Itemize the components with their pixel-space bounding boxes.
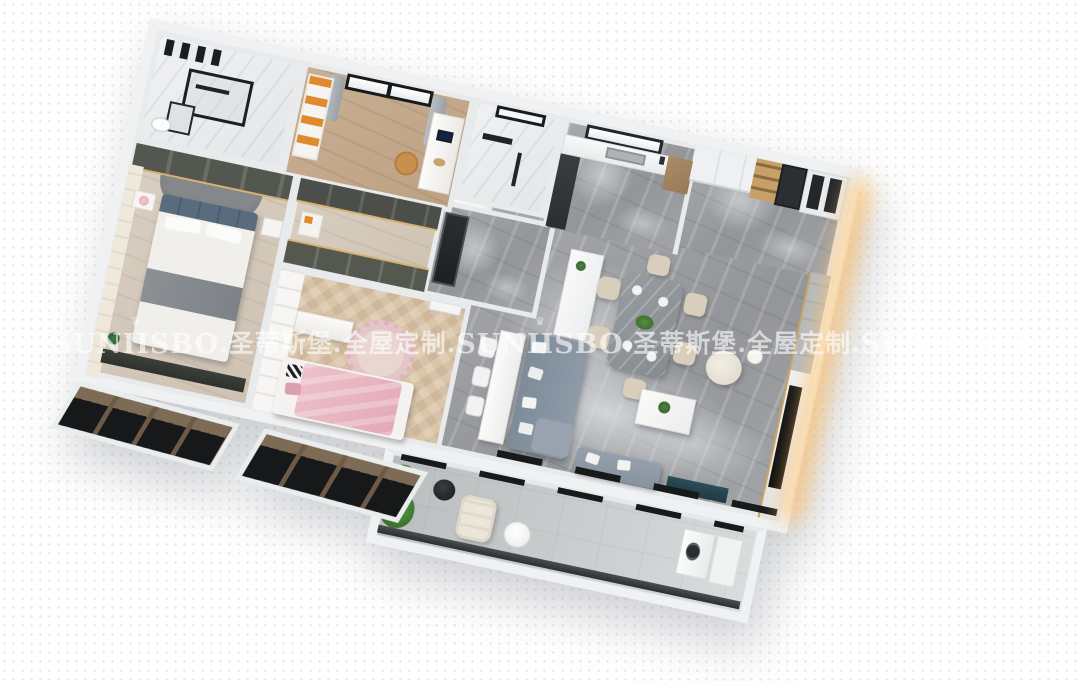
vanity-fixture: [482, 133, 513, 145]
closet-shelf-unit: [297, 211, 324, 239]
storage-box: [304, 216, 313, 225]
render-canvas: ♛SUNIISBO .圣蒂斯堡.全屋定制. ♛SUNIISBO .圣蒂斯堡.全屋…: [0, 0, 1080, 687]
black-side-table: [431, 477, 457, 502]
round-table: [501, 519, 533, 550]
crown-icon: ♛: [940, 315, 950, 328]
storage-trolley: [164, 101, 196, 136]
watermark-unit: ♛SUNIISBO: [861, 314, 1028, 360]
bathroom-window: [495, 105, 546, 127]
shower-frame: [511, 152, 522, 186]
watermark-brand: ♛SUNIISBO: [861, 315, 1028, 360]
sofa-pillow: [522, 396, 537, 409]
sofa-pillow: [532, 342, 547, 354]
sideboard-cabinets: [689, 145, 757, 193]
skylight-window: [164, 39, 224, 67]
dining-chair: [646, 253, 672, 277]
kids-door: [429, 299, 462, 315]
zigzag-pillow: [286, 363, 303, 379]
nightstand-right: [260, 217, 283, 239]
office-chair: [392, 149, 420, 177]
lounge-chair: [454, 493, 498, 544]
pink-pillow: [285, 382, 302, 395]
sofa-pillow: [617, 460, 631, 471]
kids-desk: [293, 310, 354, 344]
floor-plant: [106, 331, 120, 345]
brand-text: SUNIISBO: [861, 329, 1028, 360]
apartment-scene: [42, 18, 903, 687]
